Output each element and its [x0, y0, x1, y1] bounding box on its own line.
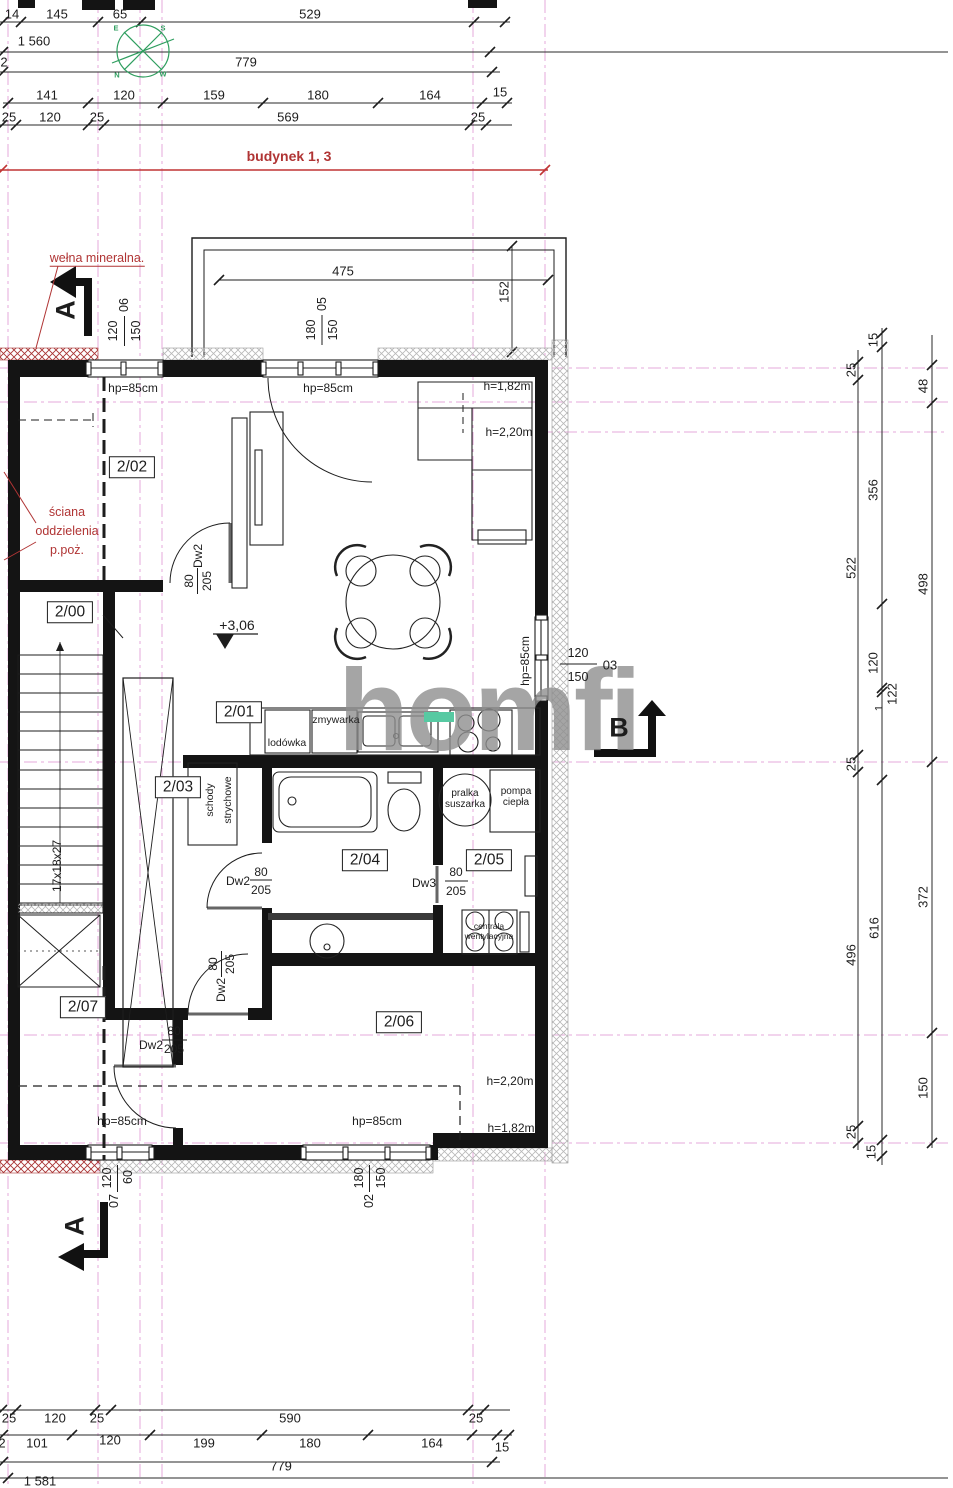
staircase: [18, 615, 173, 1067]
dimension-ticks-top: [0, 17, 512, 130]
dimension-lines-right: [858, 328, 932, 1165]
dimension-lines-bottom: [0, 1410, 948, 1478]
heat-pump: [490, 770, 540, 832]
washbasin: [310, 924, 344, 958]
section-marker-a-top: [50, 266, 92, 336]
floor-plan-page: homfi 14145655291 5602779141120159180164…: [0, 0, 953, 1488]
washer-dryer: [439, 774, 491, 826]
toilet: [388, 789, 420, 831]
dining-table: [346, 555, 440, 649]
fridge: [265, 710, 310, 753]
sofa: [418, 382, 532, 540]
wall-stubs: [18, 0, 497, 10]
dimension-ticks-bottom: [0, 1405, 514, 1483]
balcony-outline: [192, 238, 566, 357]
dimension-ticks-right: [853, 328, 937, 1161]
section-marker-a-bottom: [58, 1202, 108, 1271]
level-marker: [213, 634, 258, 649]
homfi-watermark: homfi: [338, 652, 639, 768]
homfi-watermark-accent: [424, 712, 454, 722]
compass-icon: [112, 25, 174, 77]
dimension-lines-top: [0, 22, 948, 125]
attic-stairs-box: [188, 763, 237, 845]
building-extent-line: [0, 165, 550, 175]
